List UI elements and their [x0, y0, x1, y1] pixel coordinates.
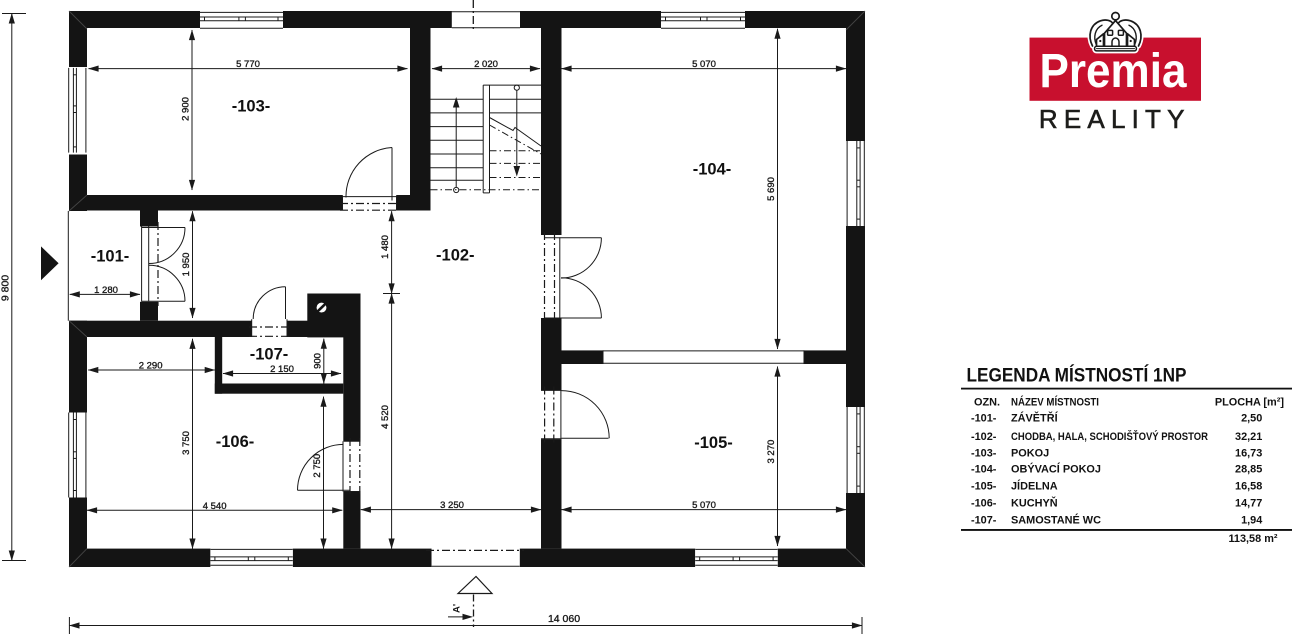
svg-text:-106-: -106-: [971, 498, 997, 510]
svg-text:PLOCHA [m²]: PLOCHA [m²]: [1215, 397, 1285, 409]
svg-text:32,21: 32,21: [1235, 431, 1262, 443]
svg-text:3 270: 3 270: [766, 440, 777, 464]
svg-text:900: 900: [312, 353, 323, 369]
svg-text:9 800: 9 800: [0, 275, 12, 301]
svg-text:1 280: 1 280: [94, 285, 118, 296]
svg-text:5 070: 5 070: [692, 500, 716, 511]
svg-text:-103-: -103-: [971, 448, 997, 460]
svg-text:-106-: -106-: [216, 433, 255, 451]
svg-text:-101-: -101-: [91, 248, 130, 266]
svg-text:2 750: 2 750: [312, 454, 323, 478]
svg-text:-104-: -104-: [971, 464, 997, 476]
svg-text:28,85: 28,85: [1235, 464, 1262, 476]
svg-text:SAMOSTANÉ WC: SAMOSTANÉ WC: [1011, 514, 1101, 527]
svg-text:4 540: 4 540: [203, 501, 227, 512]
svg-text:2,50: 2,50: [1241, 413, 1262, 425]
svg-text:2 020: 2 020: [474, 59, 498, 70]
svg-text:-102-: -102-: [436, 247, 475, 265]
svg-text:-104-: -104-: [693, 160, 732, 178]
svg-text:1 480: 1 480: [380, 235, 391, 259]
svg-text:-105-: -105-: [694, 434, 733, 452]
svg-text:5 770: 5 770: [236, 59, 260, 70]
svg-text:1,94: 1,94: [1241, 515, 1262, 527]
svg-text:JÍDELNA: JÍDELNA: [1011, 480, 1058, 493]
svg-text:2 900: 2 900: [181, 97, 192, 121]
svg-text:14 060: 14 060: [548, 613, 580, 625]
svg-text:-105-: -105-: [971, 481, 997, 493]
svg-text:A': A': [452, 604, 463, 613]
svg-text:POKOJ: POKOJ: [1011, 448, 1049, 460]
svg-text:14,77: 14,77: [1235, 498, 1262, 510]
svg-text:KUCHYŇ: KUCHYŇ: [1011, 497, 1058, 510]
svg-text:113,58 m²: 113,58 m²: [1228, 533, 1277, 545]
svg-text:LEGENDA MÍSTNOSTÍ 1NP: LEGENDA MÍSTNOSTÍ 1NP: [967, 363, 1187, 386]
svg-text:-102-: -102-: [971, 431, 997, 443]
svg-text:4 520: 4 520: [380, 405, 391, 429]
svg-text:ZÁVĚTŘÍ: ZÁVĚTŘÍ: [1011, 412, 1059, 425]
svg-text:3 750: 3 750: [181, 431, 192, 455]
svg-text:NÁZEV MÍSTNOSTI: NÁZEV MÍSTNOSTI: [1011, 396, 1099, 409]
svg-text:5 690: 5 690: [766, 177, 777, 201]
svg-text:OZN.: OZN.: [974, 397, 1000, 409]
svg-text:2 150: 2 150: [270, 364, 294, 375]
svg-text:CHODBA, HALA, SCHODIŠŤOVÝ PROS: CHODBA, HALA, SCHODIŠŤOVÝ PROSTOR: [1011, 430, 1208, 443]
svg-text:OBÝVACÍ POKOJ: OBÝVACÍ POKOJ: [1011, 463, 1101, 476]
svg-text:1 950: 1 950: [181, 253, 192, 277]
svg-text:-101-: -101-: [971, 413, 997, 425]
svg-text:-107-: -107-: [971, 515, 997, 527]
svg-text:-103-: -103-: [232, 97, 271, 115]
svg-text:16,58: 16,58: [1235, 481, 1262, 493]
svg-text:16,73: 16,73: [1235, 448, 1262, 460]
svg-text:-107-: -107-: [250, 345, 289, 363]
svg-text:5 070: 5 070: [692, 59, 716, 70]
svg-text:REALITY: REALITY: [1039, 104, 1191, 134]
svg-text:2 290: 2 290: [139, 361, 163, 372]
svg-text:3 250: 3 250: [440, 500, 464, 511]
